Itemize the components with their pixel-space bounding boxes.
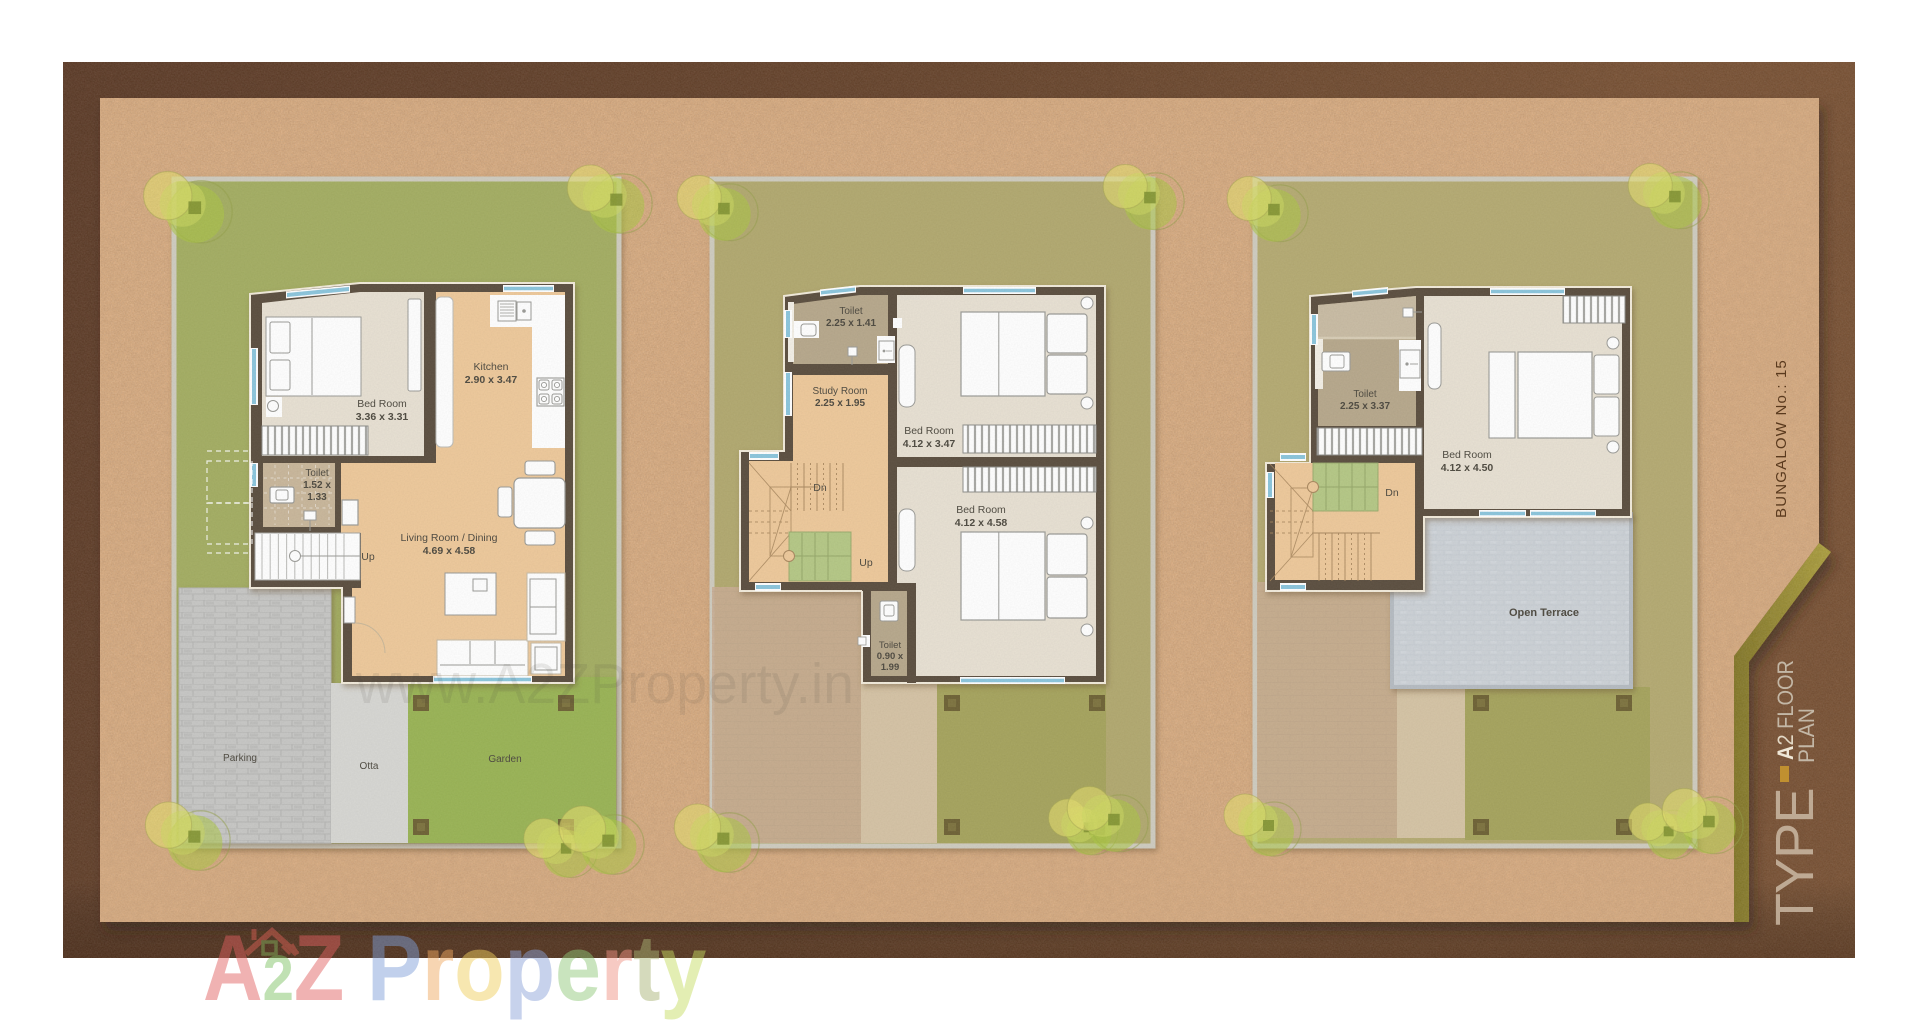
svg-text:BUNGALOW No.:: BUNGALOW No.: xyxy=(1773,383,1790,518)
svg-text:15: 15 xyxy=(1773,359,1790,378)
svg-text:www.A2ZProperty.in: www.A2ZProperty.in xyxy=(355,652,854,716)
svg-text:TYPE: TYPE xyxy=(1765,786,1825,926)
svg-text:PLAN: PLAN xyxy=(1794,708,1819,763)
